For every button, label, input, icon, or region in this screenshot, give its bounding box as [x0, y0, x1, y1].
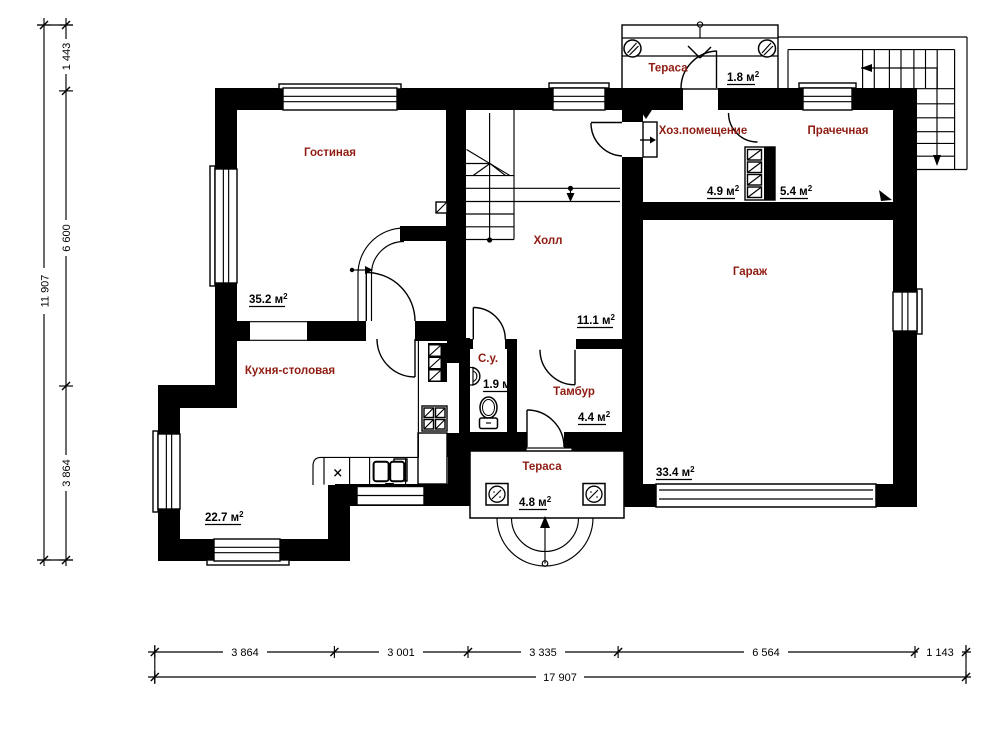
- svg-text:Тераса: Тераса: [522, 461, 562, 473]
- svg-text:35.2 м2: 35.2 м2: [249, 292, 288, 306]
- svg-text:Кухня-столовая: Кухня-столовая: [245, 365, 335, 377]
- svg-text:Тамбур: Тамбур: [553, 386, 595, 398]
- svg-text:Хоз.помещение: Хоз.помещение: [659, 125, 748, 137]
- svg-text:6 600: 6 600: [61, 224, 73, 252]
- svg-text:Гостиная: Гостиная: [304, 147, 356, 159]
- svg-text:3 864: 3 864: [61, 459, 73, 487]
- svg-text:33.4 м2: 33.4 м2: [656, 465, 695, 479]
- svg-text:Гараж: Гараж: [733, 266, 768, 278]
- svg-text:6 564: 6 564: [752, 647, 780, 659]
- svg-text:3 001: 3 001: [387, 647, 415, 659]
- svg-text:11 907: 11 907: [40, 275, 52, 308]
- svg-text:3 335: 3 335: [529, 647, 557, 659]
- svg-text:3 864: 3 864: [231, 647, 259, 659]
- svg-text:Холл: Холл: [534, 235, 563, 247]
- svg-text:1 443: 1 443: [61, 43, 73, 71]
- svg-text:Прачечная: Прачечная: [808, 125, 869, 137]
- svg-text:1 143: 1 143: [926, 647, 954, 659]
- svg-text:17 907: 17 907: [543, 672, 577, 684]
- svg-text:22.7 м2: 22.7 м2: [205, 510, 244, 524]
- svg-text:Тераса: Тераса: [648, 63, 688, 75]
- svg-text:С.у.: С.у.: [478, 353, 498, 365]
- svg-text:11.1 м2: 11.1 м2: [577, 313, 615, 327]
